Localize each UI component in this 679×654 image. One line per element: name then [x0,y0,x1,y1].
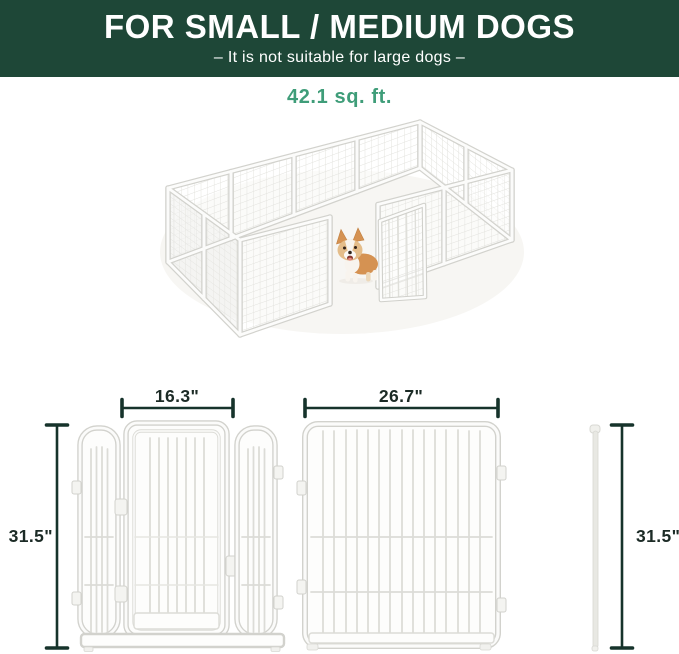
height-left-label: 31.5" [9,526,53,546]
wide-panel-tab-right-lower [497,598,506,612]
dog-front-leg [346,271,351,282]
gate-hinge-upper [115,499,127,515]
wide-panel-tab-left-upper [297,481,306,495]
right-panel-tab-lower [274,596,283,609]
base-foot-right [271,647,280,652]
dog-left-eye [343,247,346,250]
dog-nose [348,251,352,255]
playpen-illustration [160,122,524,335]
product-infographic: FOR SMALL / MEDIUM DOGS – It is not suit… [0,0,679,654]
right-narrow-panel [237,428,275,636]
wide-panel-tab-right-upper [497,466,506,480]
right-panel-tab-upper [274,466,283,479]
gate-door-open [380,205,425,300]
wide-panel-tab-left-lower [297,580,306,594]
dimension-diagrams: 16.3" 26.7" 31.5" 31.5" [9,386,679,652]
wide-panel-bottom-rail [309,633,494,643]
door-section-base-bar [81,634,284,647]
dog-hind-leg [366,272,371,282]
dog-right-eye [354,246,357,249]
rod-shaft [593,431,598,648]
gate-kick-plate [134,613,219,629]
gate-panel-bars [150,438,204,612]
connector-rod [590,425,600,651]
door-section-width-label: 16.3" [155,386,199,406]
left-narrow-panel [80,428,118,636]
wide-panel-foot-right [480,644,491,650]
dog-front-leg-2 [353,273,358,283]
wide-panel-diagram [297,424,506,650]
left-panel-tab-upper [72,481,81,494]
panel-width-label: 26.7" [379,386,423,406]
dog-hind-leg-2 [373,270,378,281]
door-section-diagram [72,423,284,652]
rod-tip [592,646,598,651]
wide-panel-foot-left [307,644,318,650]
base-foot-left [84,647,93,652]
height-right-label: 31.5" [636,526,679,546]
illustration-scene: 16.3" 26.7" 31.5" 31.5" [0,0,679,654]
left-panel-tab-lower [72,592,81,605]
gate-hinge-lower [115,586,127,602]
dog-tongue [348,258,352,261]
